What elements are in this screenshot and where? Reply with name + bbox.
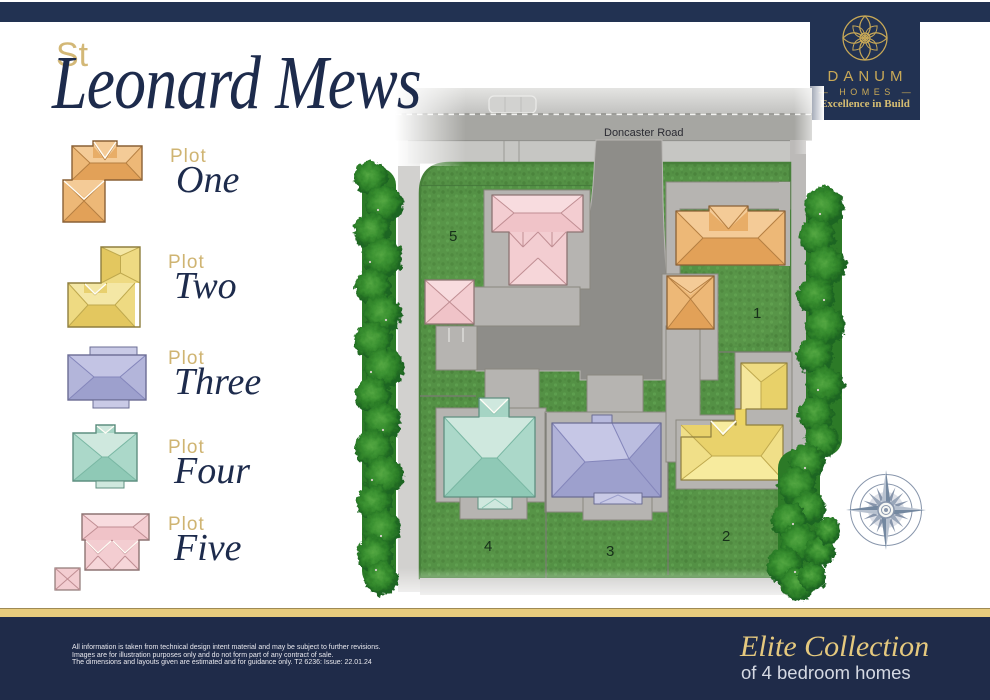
svg-text:Doncaster Road: Doncaster Road <box>604 127 684 139</box>
svg-text:4: 4 <box>484 538 492 555</box>
svg-text:5: 5 <box>449 228 457 245</box>
svg-text:2: 2 <box>722 528 730 545</box>
svg-text:3: 3 <box>606 543 614 560</box>
svg-text:1: 1 <box>753 305 761 322</box>
